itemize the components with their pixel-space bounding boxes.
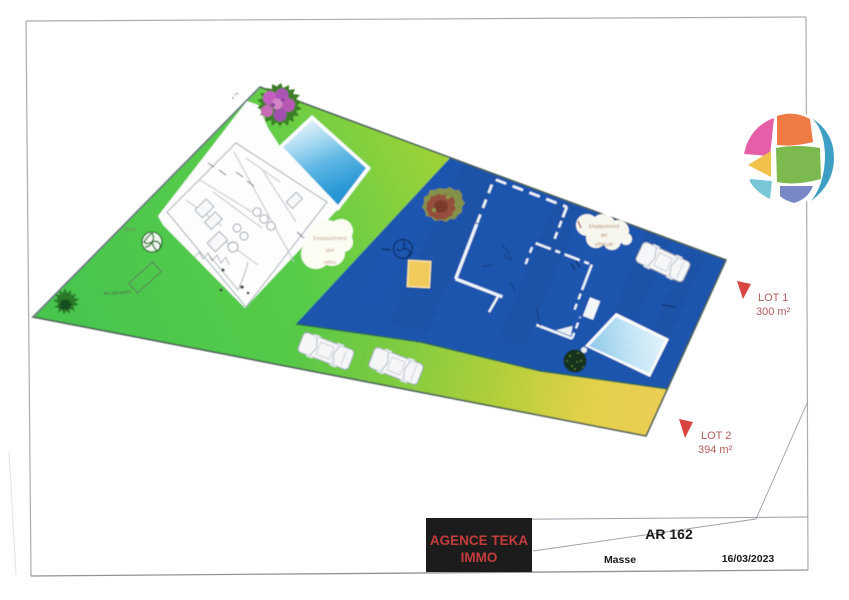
svg-text:AGENCE TEKA: AGENCE TEKA [430, 533, 529, 548]
svg-text:IMMO: IMMO [461, 550, 498, 565]
svg-text:394 m²: 394 m² [698, 444, 733, 456]
svg-text:véhicule: véhicule [595, 242, 614, 248]
svg-text:300 m²: 300 m² [756, 306, 791, 318]
svg-text:vélos: vélos [324, 260, 337, 266]
svg-text:del: del [601, 233, 608, 239]
svg-text:Mûrier: Mûrier [124, 227, 137, 232]
svg-text:Masse: Masse [604, 554, 636, 566]
svg-text:abri: abri [325, 248, 334, 254]
svg-text:16/03/2023: 16/03/2023 [722, 553, 775, 565]
svg-text:LOT 2: LOT 2 [701, 430, 731, 442]
svg-text:Emplacement: Emplacement [313, 236, 347, 242]
svg-text:LOT 1: LOT 1 [758, 292, 788, 304]
svg-text:Emplacement: Emplacement [589, 224, 620, 230]
svg-text:AR 162: AR 162 [645, 526, 693, 542]
